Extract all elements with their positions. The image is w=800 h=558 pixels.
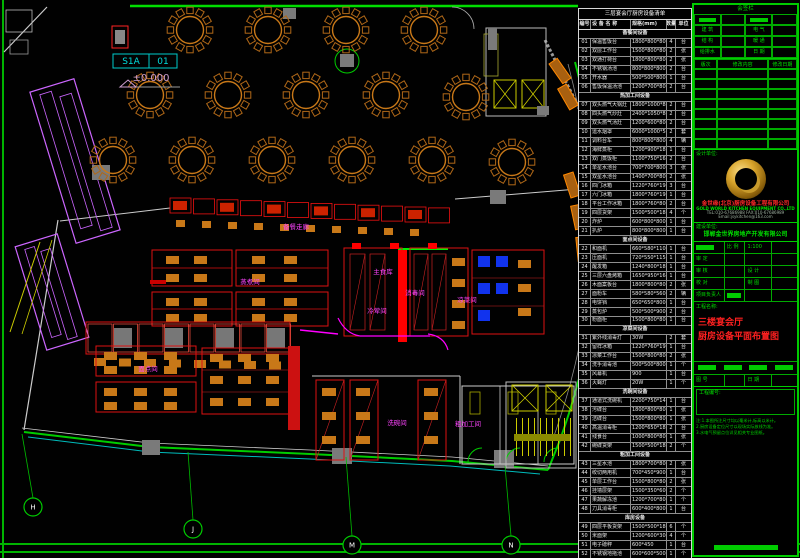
equipment-item	[390, 243, 399, 249]
equipment-item	[570, 418, 571, 456]
grid-bubble-label: J	[191, 526, 194, 534]
room-label: 洗碗间	[387, 418, 407, 427]
col-name: 设 备 名 称	[591, 20, 631, 29]
schedule-item-row: 17六门冰箱1800*760*19501台	[579, 191, 691, 200]
schedule-section-row: 热加工间设备	[579, 93, 691, 102]
schedule-item-row: 25三层六盘烤箱1650*950*16001台	[579, 272, 691, 281]
equipment-item	[228, 222, 237, 229]
blank-cell	[725, 254, 746, 265]
schedule-section-row: 库房设备	[579, 514, 691, 523]
equipment-rect	[340, 54, 354, 67]
equipment-item	[266, 398, 279, 406]
equipment-item	[134, 402, 147, 410]
room-label: 面点间	[138, 365, 158, 373]
equipment-item	[267, 328, 285, 348]
schedule-item-row: 35风幕机9001台	[579, 371, 691, 380]
equipment-item	[202, 221, 211, 228]
title-block: 会签栏 建 筑 电 气 结 构 暖 通 给排水 日 期	[692, 3, 799, 557]
equipment-item	[266, 376, 279, 384]
plan-line	[10, 242, 40, 332]
schedule-item-row: 23压面机720*550*11501台	[579, 254, 691, 263]
schedule-item-row: 31紫外线消毒灯30W2套	[579, 335, 691, 344]
equipment-item	[356, 436, 370, 444]
schedule-item-row: 49四层平板货架1500*500*18006个	[579, 523, 691, 532]
revision-empty-row	[694, 129, 797, 139]
equipment-item	[164, 388, 177, 396]
plan-line	[432, 254, 446, 330]
signoff-label: 暖 通	[745, 36, 772, 47]
equipment-rect	[549, 58, 571, 83]
detail-marker-code: S1A	[122, 57, 140, 67]
plan-line	[455, 189, 578, 199]
drafter-label: 制 图	[745, 278, 772, 289]
revision-empty-row	[694, 119, 797, 129]
schedule-body: 备餐间设备01保温售饭台1800*800*8004台02双层工作台1500*80…	[579, 30, 691, 558]
drawing-title-box: 三楼宴会厅 厨房设备平面布置图	[694, 313, 797, 362]
equipment-item	[284, 274, 297, 282]
blank-cell	[725, 266, 746, 277]
schedule-item-row: 44绞切两用机700*450*9001台	[579, 469, 691, 478]
signoff-grid: 建 筑 电 气 结 构 暖 通 给排水 日 期	[694, 14, 797, 58]
equipment-item	[470, 392, 480, 414]
floor-plan-canvas[interactable]: 备餐走廊蒸煮间主食库消毒间冷荤间凉菜间面点间洗碗间粗加工间HJMNS1A01±0…	[0, 0, 578, 558]
equipment-rect	[571, 204, 578, 230]
design-company-label: 设计单位:	[696, 152, 795, 158]
col-spec: 规格(mm)	[631, 20, 667, 29]
room-label: 备餐走廊	[283, 222, 310, 231]
schedule-item-row: 50米面架1200*600*3004个	[579, 532, 691, 541]
equipment-item	[252, 256, 265, 264]
equipment-item	[266, 354, 279, 362]
signoff-cell	[721, 25, 746, 36]
schedule-section-row: 洗碗间设备	[579, 389, 691, 398]
schedule-item-row: 28电饼铛650*650*8001台	[579, 299, 691, 308]
revision-empty-row	[694, 89, 797, 99]
schedule-item-row: 03双通打荷台1800*800*8002张	[579, 57, 691, 66]
signoff-cell	[721, 14, 746, 25]
equipment-rect	[283, 8, 296, 19]
rev-col-date: 修改日期	[768, 59, 797, 69]
schedule-item-row: 36灭蝇灯20W1个	[579, 380, 691, 389]
plan-line	[4, 7, 47, 52]
equipment-rect	[564, 172, 578, 198]
rev-col-version: 版次	[694, 59, 717, 69]
equipment-item	[382, 206, 403, 221]
schedule-item-row: 04不锈钢汤池800*800*8002台	[579, 66, 691, 75]
equipment-item	[408, 210, 422, 219]
equipment-item	[220, 203, 234, 212]
room-label: 冷荤间	[367, 306, 387, 315]
drawing-title-line1: 三楼宴会厅	[698, 316, 793, 330]
equipment-rect	[6, 10, 32, 32]
equipment-item	[429, 208, 450, 223]
equipment-item	[119, 359, 131, 367]
blank-cell	[772, 375, 797, 386]
equipment-item	[164, 402, 177, 410]
schedule-title: 三层宴会厅厨房设备清单	[579, 9, 691, 20]
blank-cell	[772, 242, 797, 253]
schedule-item-row: 47果蔬解冻池1200*700*8001个	[579, 496, 691, 505]
equipment-item	[335, 204, 356, 219]
equipment-rect	[514, 434, 570, 441]
schedule-item-row: 46挂墙层架1500*350*6002个	[579, 487, 691, 496]
equipment-item	[284, 256, 297, 264]
equipment-rect	[30, 79, 120, 244]
schedule-item-row: 32留样冰箱1220*760*19501台	[579, 344, 691, 353]
plan-path	[338, 318, 360, 336]
equipment-item	[322, 436, 336, 444]
schedule-item-row: 52不锈钢地拖池600*600*5001个	[579, 550, 691, 558]
room-label: 主食库	[373, 267, 393, 276]
schedule-item-row: 24醒发箱1240*800*18201台	[579, 263, 691, 272]
banquet-table	[363, 72, 409, 118]
bottom-seal-bar	[714, 545, 778, 550]
banquet-table	[401, 7, 447, 53]
signoff-label: 电 气	[745, 25, 772, 36]
schedule-item-row: 09双头燃气汤灶1200*600*8002台	[579, 120, 691, 129]
project-number-box: 工程编号:	[696, 389, 795, 415]
plan-path	[22, 428, 548, 466]
banquet-table	[409, 137, 455, 183]
equipment-item	[518, 284, 531, 292]
revision-header: 版次 修改内容 修改日期	[694, 59, 797, 69]
scale-value: 1:100	[745, 242, 772, 253]
schedule-item-row: 16四门冰箱1220*760*19503台	[579, 182, 691, 191]
grid-bubble-label: M	[349, 542, 355, 550]
schedule-item-row: 29蒸包炉500*500*9002台	[579, 308, 691, 317]
drawing-title-line2: 厨房设备平面布置图	[698, 330, 793, 344]
schedule-item-row: 21扒炉800*800*8001台	[579, 227, 691, 236]
sheet-no-label: 图 号	[694, 375, 725, 386]
schedule-item-row: 39洁碟台1500*800*8001张	[579, 416, 691, 425]
plan-path	[452, 7, 474, 29]
schedule-item-row: 41残食台1000*800*8001张	[579, 434, 691, 443]
equipment-rect	[332, 448, 352, 464]
schedule-section-row: 备餐间设备	[579, 30, 691, 39]
scale-label: 比 例	[725, 242, 746, 253]
equipment-rect	[60, 93, 112, 230]
equipment-item	[173, 201, 187, 210]
equipment-item	[332, 226, 341, 233]
proofread-label: 校 对	[694, 278, 725, 289]
company-logo	[726, 159, 766, 199]
revision-empty-row	[694, 69, 797, 79]
schedule-item-row: 37通道式洗碗机2200*750*14501台	[579, 398, 691, 407]
equipment-item	[104, 352, 117, 360]
equipment-item	[104, 366, 117, 374]
banquet-table	[169, 137, 215, 183]
revision-empty-row	[694, 139, 797, 149]
equipment-rect	[488, 28, 497, 50]
equipment-item	[164, 366, 177, 374]
equipment-item	[424, 436, 438, 444]
cad-drawing-viewport: 备餐走廊蒸煮间主食库消毒间冷荤间凉菜间面点间洗碗间粗加工间HJMNS1A01±0…	[0, 0, 800, 558]
blank-cell	[745, 290, 772, 301]
equipment-rect	[25, 247, 61, 338]
schedule-item-row: 45单层工作台1500*800*8002张	[579, 478, 691, 487]
signoff-cell	[772, 36, 797, 47]
plan-line	[22, 434, 33, 498]
revision-empty-row	[694, 79, 797, 89]
blank-cell	[772, 254, 797, 265]
revision-rows	[694, 69, 797, 149]
client-label: 建设单位:	[696, 225, 795, 231]
equipment-item	[478, 283, 490, 294]
schedule-item-row: 18平台工作冰箱1800*760*8002台	[579, 200, 691, 209]
signature-row	[694, 362, 797, 375]
equipment-item	[284, 298, 297, 306]
equipment-item	[352, 243, 361, 249]
banquet-table	[167, 7, 213, 53]
equipment-item	[478, 310, 490, 321]
plan-line	[188, 452, 193, 520]
schedule-item-row: 19四层货架1500*500*18004个	[579, 209, 691, 218]
equipment-item	[356, 412, 370, 420]
schedule-item-row: 02双层工作台1500*800*8002张	[579, 48, 691, 57]
blank-cell	[725, 278, 746, 289]
equipment-item	[428, 243, 437, 249]
signoff-label: 给排水	[694, 47, 721, 58]
client-section: 建设单位: 邯郸金世界房地产开发有限公司	[694, 223, 797, 242]
signoff-cell	[721, 47, 746, 58]
equipment-item	[194, 199, 215, 214]
schedule-item-row: 20炸炉600*800*8001台	[579, 218, 691, 227]
equipment-item	[322, 388, 336, 396]
equipment-item	[314, 206, 328, 215]
schedule-item-row: 22和面机660*580*11001台	[579, 245, 691, 254]
schedule-item-row: 38污碟台1800*800*8001张	[579, 407, 691, 416]
blank-cell	[745, 254, 772, 265]
date-label: 日 期	[745, 375, 772, 386]
signoff-label: 结 构	[694, 36, 721, 47]
plan-line	[505, 466, 511, 536]
banquet-table	[489, 139, 535, 185]
equipment-item	[194, 256, 207, 264]
equipment-item	[194, 314, 207, 322]
schedule-item-row: 26木面案板台1800*800*8002张	[579, 281, 691, 290]
schedule-item-row: 13双门蒸饭柜1100*750*16002台	[579, 156, 691, 165]
equipment-item	[238, 398, 251, 406]
equipment-item	[166, 274, 179, 282]
design-company-section: 设计单位: 金世缘(北京)厨房设备工程有限公司 GOLD WORLD KITCH…	[694, 150, 797, 223]
equipment-item	[210, 398, 223, 406]
signoff-cell	[721, 36, 746, 47]
signoff-cell	[772, 47, 797, 58]
equipment-rect	[558, 84, 578, 110]
banquet-table	[323, 7, 369, 53]
equipment-item	[269, 362, 281, 370]
equipment-item	[361, 208, 375, 217]
room-label: 消毒间	[405, 288, 425, 297]
equipment-item	[176, 220, 185, 227]
equipment-item	[210, 376, 223, 384]
notes-section: 工程编号: 注:1.本图所注尺寸均以毫米计,标高以米计。 2.厨房设备定位尺寸以…	[694, 387, 797, 555]
signoff-cell	[772, 14, 797, 25]
plan-line	[300, 330, 338, 334]
schedule-item-row: 12海鲜蒸柜1200*900*18501台	[579, 147, 691, 156]
detail-marker-number: 01	[157, 57, 168, 67]
schedule-item-row: 14单星水池台700*700*8003张	[579, 165, 691, 174]
company-email: Email:jsykitchen@163.com	[696, 215, 795, 219]
equipment-item	[104, 402, 117, 410]
equipment-rect	[288, 346, 300, 430]
schedule-item-row: 11调料台车800*800*8004辆	[579, 138, 691, 147]
schedule-item-row: 30粉面柜1500*800*8001台	[579, 317, 691, 326]
blank-cell	[772, 278, 797, 289]
room-label: 蒸煮间	[240, 277, 260, 286]
equipment-item	[424, 388, 438, 396]
col-unit: 单位	[676, 20, 691, 29]
equipment-schedule-table: 三层宴会厅厨房设备清单 编号 设 备 名 称 规格(mm) 数量 单位 备餐间设…	[578, 8, 692, 558]
schedule-item-row: 15双星水池台1400*700*8002张	[579, 174, 691, 183]
schedule-item-row: 40高温消毒柜1200*650*18502台	[579, 425, 691, 434]
equipment-item	[384, 228, 393, 235]
equipment-item	[322, 412, 336, 420]
equipment-item	[134, 388, 147, 396]
equipment-item	[244, 361, 256, 369]
seal-cell	[725, 290, 746, 301]
equipment-item	[88, 324, 112, 352]
col-qty: 数量	[667, 20, 676, 29]
signoff-label: 建 筑	[694, 25, 721, 36]
equipment-item	[452, 321, 465, 329]
equipment-item	[252, 314, 265, 322]
equipment-item	[166, 298, 179, 306]
schedule-item-row: 01保温售饭台1800*800*8004台	[579, 39, 691, 48]
banquet-table	[443, 74, 489, 120]
equipment-item	[114, 328, 132, 348]
signoff-seal	[694, 14, 721, 25]
schedule-item-row: 07双头燃气大锅灶1800*1000*8002台	[579, 102, 691, 111]
revision-section: 版次 修改内容 修改日期	[694, 59, 797, 150]
equipment-item	[267, 205, 281, 214]
col-no: 编号	[579, 20, 591, 29]
banquet-table	[283, 72, 329, 118]
signoff-label: 日 期	[745, 47, 772, 58]
schedule-section-row: 面点间设备	[579, 236, 691, 245]
equipment-item	[288, 203, 309, 218]
elevation-label: ±0.000	[132, 73, 169, 84]
signoff-seal	[745, 14, 772, 25]
signoff-section: 会签栏 建 筑 电 气 结 构 暖 通 给排水 日 期	[694, 5, 797, 59]
room-label: 粗加工间	[455, 419, 481, 428]
equipment-item	[238, 376, 251, 384]
note-line-3: 3.水电气预留点位详见相关专业图纸。	[696, 430, 795, 436]
equipment-item	[216, 328, 234, 348]
equipment-item	[452, 279, 465, 287]
equipment-item	[134, 352, 147, 360]
project-name-label: 工程名称:	[694, 302, 797, 313]
banquet-table	[249, 137, 295, 183]
schedule-item-row: 33凉菜工作台1500*800*8002张	[579, 353, 691, 362]
checked-label: 审 核	[694, 266, 725, 277]
equipment-rect	[142, 440, 160, 455]
equipment-item	[238, 354, 251, 362]
schedule-item-row: 48刀具消毒柜600*400*8001台	[579, 505, 691, 514]
equipment-rect	[344, 248, 402, 336]
project-lead-label: 项目负责人	[694, 290, 725, 301]
schedule-item-row: 43三星水池1800*700*8002张	[579, 461, 691, 470]
equipment-item	[356, 388, 370, 396]
schedule-item-row: 06售饭保温汤池1200*700*8002台	[579, 84, 691, 93]
equipment-rect	[150, 280, 166, 284]
equipment-item	[518, 260, 531, 268]
plan-line	[346, 457, 352, 536]
grid-bubble-label: N	[508, 542, 513, 550]
equipment-item	[165, 328, 183, 348]
equipment-item	[252, 298, 265, 306]
equipment-item	[410, 229, 419, 236]
equipment-item	[496, 283, 508, 294]
rev-col-content: 修改内容	[717, 59, 768, 69]
blank-cell	[725, 375, 746, 386]
equipment-item	[166, 314, 179, 322]
revision-empty-row	[694, 109, 797, 119]
fields-section: 比 例 1:100 审 定 审 核 设 计 校 对 制 图	[694, 242, 797, 387]
schedule-item-row: 42碗碟货架1500*500*18002个	[579, 443, 691, 452]
schedule-item-row: 08四头燃气炒灶2400*1050*8002台	[579, 111, 691, 120]
equipment-item	[452, 258, 465, 266]
seal-cell	[694, 242, 725, 253]
equipment-item	[194, 274, 207, 282]
banquet-table	[205, 72, 251, 118]
equipment-item	[478, 256, 490, 267]
equipment-item	[254, 223, 263, 230]
plan-path	[554, 64, 578, 436]
schedule-section-row: 凉菜间设备	[579, 326, 691, 335]
revision-empty-row	[694, 99, 797, 109]
grid-bubble-label: H	[30, 504, 35, 512]
schedule-item-row: 05开水器500*500*8001台	[579, 75, 691, 84]
equipment-item	[210, 354, 223, 362]
equipment-item	[164, 352, 177, 360]
schedule-item-row: 51电子磅秤600*4501台	[579, 541, 691, 550]
room-label: 凉菜间	[457, 295, 477, 304]
equipment-rect	[115, 30, 125, 44]
schedule-header-row: 编号 设 备 名 称 规格(mm) 数量 单位	[579, 20, 691, 30]
equipment-item	[358, 227, 367, 234]
equipment-item	[104, 388, 117, 396]
equipment-item	[194, 298, 207, 306]
blank-cell	[772, 266, 797, 277]
equipment-item	[139, 324, 163, 352]
plan-line	[370, 254, 385, 330]
equipment-rect	[490, 190, 506, 204]
equipment-rect	[494, 450, 514, 468]
designer-label: 设 计	[745, 266, 772, 277]
plan-line	[350, 254, 365, 330]
equipment-item	[424, 412, 438, 420]
approved-label: 审 定	[694, 254, 725, 265]
signoff-cell	[772, 25, 797, 36]
schedule-item-row: 34洗手消毒池500*500*8001个	[579, 362, 691, 371]
equipment-item	[166, 256, 179, 264]
client-name: 邯郸金世界房地产开发有限公司	[696, 232, 795, 239]
equipment-item	[284, 314, 297, 322]
equipment-rect	[537, 106, 549, 115]
schedule-item-row: 10运水烟罩6000*1000*5002套	[579, 129, 691, 138]
schedule-section-row: 粗加工间设备	[579, 452, 691, 461]
equipment-item	[518, 308, 531, 316]
signoff-header: 会签栏	[694, 5, 797, 14]
equipment-item	[496, 256, 508, 267]
blank-cell	[772, 290, 797, 301]
equipment-rect	[15, 234, 89, 350]
equipment-item	[241, 201, 262, 216]
schedule-item-row: 27面粉车580*580*5602辆	[579, 290, 691, 299]
banquet-table	[329, 137, 375, 183]
